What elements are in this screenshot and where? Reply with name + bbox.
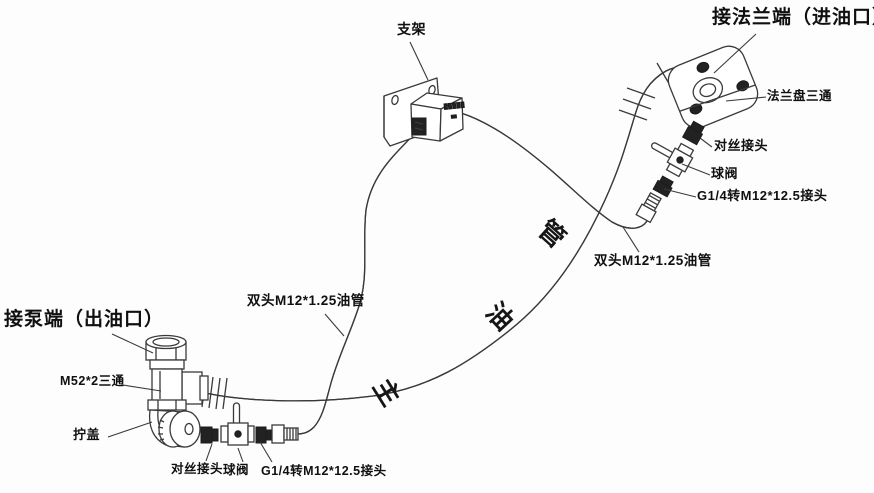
label-right-threaded-joint: 对丝接头 [714,139,768,154]
pipe-assembly-drawing [0,0,874,493]
label-bottom-ball-valve: 球阀 [223,463,249,477]
label-flange-end-title: 接法兰端（进油口） [712,7,874,29]
bottom-fitting-chain [201,403,298,445]
flange-tee-plate [664,41,763,132]
bottom-adapter-part [256,427,271,443]
label-flange-tee: 法兰盘三通 [767,89,832,103]
label-right-adapter: G1/4转M12*12.5接头 [697,189,827,204]
label-bottom-adapter: G1/4转M12*12.5接头 [261,464,387,478]
label-right-ball-valve: 球阀 [711,167,738,182]
label-left-oil-pipe: 双头M12*1.25油管 [247,293,365,309]
label-bracket: 支架 [397,21,426,37]
bottom-ball-valve-part [221,403,254,445]
label-right-oil-pipe: 双头M12*1.25油管 [594,253,712,269]
junction-box-port [412,118,426,135]
right-fitting-chain [636,120,706,222]
label-screw-cap: 拧盖 [73,428,100,443]
bottom-connector-part [272,425,298,443]
tee-assembly [146,336,208,448]
junction-box [411,93,465,141]
bottom-threaded-joint-part [201,427,218,443]
screw-cap-part [158,411,200,447]
right-connector-part [636,192,663,222]
right-adapter-part [653,175,675,197]
label-tee: M52*2三通 [60,374,125,388]
label-bottom-threaded-joint: 对丝接头 [171,462,223,476]
label-pump-end-title: 接泵端（出油口） [4,309,164,331]
diagram-canvas: 支架 接法兰端（进油口） 法兰盘三通 对丝接头 球阀 G1/4转M12*12.5… [0,0,874,493]
